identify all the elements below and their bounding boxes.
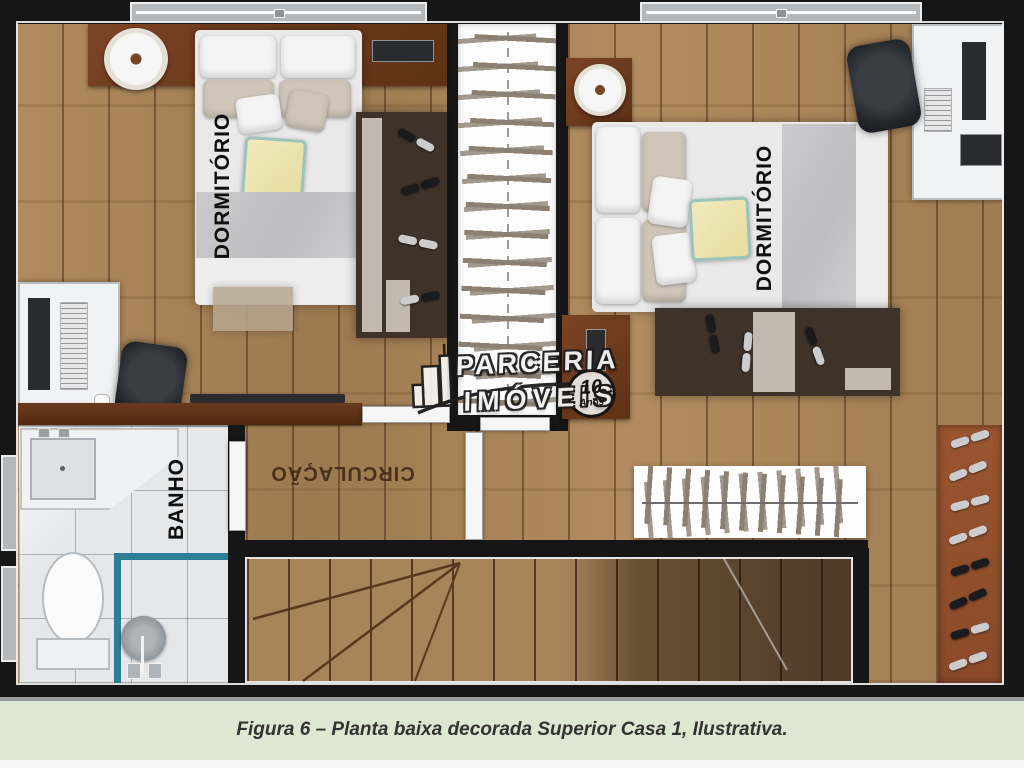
shoes-pair [706,314,721,355]
shower-head [121,616,166,661]
bedroom1-tv [190,394,345,403]
rug-runner [753,312,795,392]
bedroom1-rug [356,112,447,338]
watermark: PARCERIA IMÓVEIS 10 Anos [403,335,657,441]
pillow [596,127,640,213]
pillow [281,36,355,78]
shoes-pair [398,234,439,250]
caption-bar: Figura 6 – Planta baixa decorada Superio… [0,697,1024,764]
bedroom1-dresser-stereo [372,40,434,62]
pillow [200,36,276,78]
bed-blanket [782,124,858,310]
bedroom1-round-decor [104,28,168,90]
bedroom2-rug [655,308,900,396]
folded-towel [688,196,751,261]
bathroom-label: BANHO [164,453,190,545]
shoes-pair [804,326,825,366]
bedroom2-label: DORMITÓRIO [751,143,779,293]
bedroom1-window [130,2,427,23]
bed-foot-sheet [856,124,886,310]
outer-wall-bottom [0,683,1024,697]
wardrobe-rail [642,502,858,504]
floor-plan: DORMITÓRIO DORMITÓRIO BANHO CIRCULAÇÃO P… [0,0,1024,697]
shower-partition-vertical [114,553,121,683]
shoes-pair [948,650,988,671]
stairwell-right-wall [853,548,869,683]
bathroom-door [229,441,246,531]
window-handle [776,9,787,18]
cushion [284,89,330,133]
shoes-pair [396,127,435,153]
shoes-pair [948,524,988,545]
window-handle [274,9,285,18]
shoes-pair [950,494,991,512]
shower-partition-horizontal [114,553,228,560]
staircase-winder-lines [245,557,853,683]
bedroom2-window [640,2,922,23]
shoes-pair [400,176,441,196]
bedroom1-bathroom-wall [16,403,362,425]
bedroom2-door [465,432,483,540]
bed-foot-rug [213,287,293,331]
figure-caption: Figura 6 – Planta baixa decorada Superio… [0,719,1024,741]
cushion [647,175,693,228]
shower-valve [127,663,141,679]
bedroom2-keyboard [924,88,952,132]
bathroom-window-lower [1,566,18,662]
rug-runner-2 [386,280,410,332]
bedroom1-label: DORMITÓRIO [209,111,237,261]
bedroom2-bed [592,122,888,312]
rug-runner-2 [845,368,891,390]
bedroom1-keyboard [60,302,88,390]
cushion [235,93,284,135]
shower-valve-2 [148,663,162,679]
bedroom2-desk [912,24,1008,200]
pillow [596,218,640,304]
shoes-pair [950,622,991,641]
bedroom2-monitor [962,42,986,120]
bathroom-sink [30,438,96,500]
shoes-pair [948,587,988,611]
hallway-label: CIRCULAÇÃO [250,460,435,486]
stairwell-top-wall [228,540,868,557]
watermark-badge: 10 Anos [567,369,615,417]
bedroom1-monitor [28,298,50,390]
shoes-pair [948,460,988,482]
bottom-white-strip [0,760,1024,768]
shower-arm [141,636,144,674]
rug-runner [362,118,382,332]
shoes-pair [950,557,991,577]
bedroom2-wardrobe-rack [634,466,866,538]
sink-drain [60,466,65,471]
shoes-pair [950,429,991,449]
sink-faucet-2 [58,428,70,438]
bedroom2-laptop [960,134,1002,166]
shoes-pair [741,332,752,373]
badge-word: Anos [569,396,615,409]
bedroom2-round-decor [574,64,626,116]
toilet-tank [36,638,110,670]
toilet-bowl [42,552,104,644]
outer-wall-right [1004,0,1024,697]
bathroom-window-upper [1,455,18,551]
sink-faucet [38,428,50,438]
shoe-rack [938,425,1002,683]
